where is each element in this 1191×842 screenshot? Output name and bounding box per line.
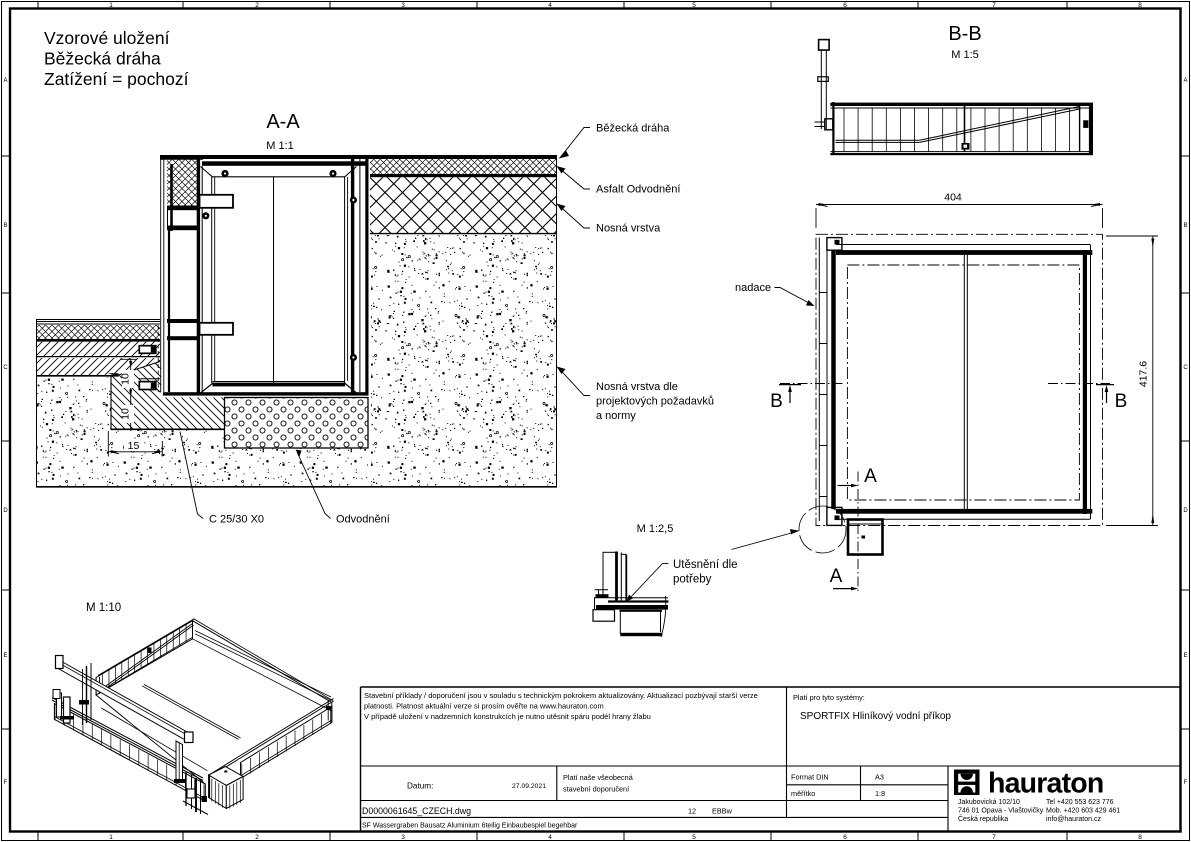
svg-text:A: A <box>830 566 843 587</box>
svg-text:V případě uložení v nadzemních: V případě uložení v nadzemních konstrukc… <box>364 712 651 721</box>
svg-text:B: B <box>770 391 783 412</box>
svg-text:C: C <box>3 365 8 371</box>
svg-text:3: 3 <box>401 2 405 9</box>
svg-text:a normy: a normy <box>596 410 636 422</box>
svg-text:8: 8 <box>1138 2 1142 9</box>
svg-text:417.6: 417.6 <box>1138 361 1150 387</box>
svg-text:A: A <box>864 466 877 487</box>
svg-text:1: 1 <box>109 834 113 841</box>
svg-text:A: A <box>1183 78 1187 84</box>
svg-text:stavební doporučení: stavební doporučení <box>563 785 629 794</box>
svg-text:Běžecká dráha: Běžecká dráha <box>44 49 161 69</box>
svg-text:M 1:10: M 1:10 <box>86 602 121 614</box>
svg-text:SPORTFIX Hliníkový vodní příko: SPORTFIX Hliníkový vodní příkop <box>800 711 951 722</box>
svg-text:Utěsnění dle: Utěsnění dle <box>673 559 738 571</box>
svg-text:A-A: A-A <box>266 111 300 133</box>
svg-text:10: 10 <box>120 408 132 420</box>
svg-text:Vzorové uložení: Vzorové uložení <box>44 28 170 48</box>
svg-text:D: D <box>3 508 8 514</box>
svg-text:C 25/30 X0: C 25/30 X0 <box>209 514 264 526</box>
svg-text:A: A <box>3 78 7 84</box>
svg-text:Tel +420 553 623 776: Tel +420 553 623 776 <box>1046 799 1114 806</box>
svg-text:E: E <box>1183 653 1187 659</box>
svg-text:Platí naše všeobecná: Platí naše všeobecná <box>563 773 634 782</box>
svg-text:EBBw: EBBw <box>712 807 733 816</box>
svg-text:Stavební příklady / doporučení: Stavební příklady / doporučení jsou v so… <box>364 691 758 700</box>
svg-text:platnosti. Platnost aktuální v: platnosti. Platnost aktuální verze si pr… <box>364 702 604 711</box>
svg-text:projektových požadavků: projektových požadavků <box>596 396 714 408</box>
svg-text:E: E <box>3 653 7 659</box>
svg-text:nadace: nadace <box>735 282 771 294</box>
svg-text:F: F <box>1184 780 1188 786</box>
svg-text:M 1:5: M 1:5 <box>951 49 979 61</box>
svg-text:M 1:2,5: M 1:2,5 <box>637 523 674 535</box>
svg-text:6: 6 <box>843 834 847 841</box>
svg-text:F: F <box>4 780 8 786</box>
svg-text:Odvodnění: Odvodnění <box>336 514 390 526</box>
svg-text:Nosná vrstva dle: Nosná vrstva dle <box>596 381 678 393</box>
svg-text:1:8: 1:8 <box>875 789 885 798</box>
svg-text:5: 5 <box>692 834 696 841</box>
svg-text:Nosná vrstva: Nosná vrstva <box>596 223 661 235</box>
svg-text:8: 8 <box>1138 834 1142 841</box>
svg-text:27.09.2021: 27.09.2021 <box>512 783 546 790</box>
svg-text:SF Wassergraben Bausatz Alumin: SF Wassergraben Bausatz Aluminium 6teili… <box>362 823 578 830</box>
svg-text:Jakubovická 102/10: Jakubovická 102/10 <box>958 799 1020 806</box>
svg-text:Format DIN: Format DIN <box>791 773 829 782</box>
svg-text:Zatížení = pochozí: Zatížení = pochozí <box>44 69 189 89</box>
svg-text:B: B <box>1115 391 1128 412</box>
svg-text:Platí pro tyto systémy:: Platí pro tyto systémy: <box>793 693 865 702</box>
svg-text:2: 2 <box>255 834 259 841</box>
svg-text:B: B <box>3 223 7 229</box>
svg-text:potřeby: potřeby <box>673 574 712 586</box>
svg-text:D0000061645_CZECH.dwg: D0000061645_CZECH.dwg <box>362 806 471 816</box>
svg-text:Mob. +420 603 429 461: Mob. +420 603 429 461 <box>1046 808 1120 815</box>
svg-text:15: 15 <box>128 440 140 452</box>
svg-text:7: 7 <box>992 834 996 841</box>
svg-text:Datum:: Datum: <box>407 782 433 791</box>
svg-text:měřítko: měřítko <box>791 789 815 798</box>
svg-text:2: 2 <box>255 2 259 9</box>
svg-text:746 01 Opava - Vlaštovičky: 746 01 Opava - Vlaštovičky <box>958 808 1044 815</box>
svg-text:A3: A3 <box>875 773 884 782</box>
svg-text:D: D <box>1183 508 1188 514</box>
svg-text:B: B <box>1183 223 1187 229</box>
svg-text:5: 5 <box>692 2 696 9</box>
svg-text:info@hauraton.cz: info@hauraton.cz <box>1046 816 1101 823</box>
svg-text:M 1:1: M 1:1 <box>266 140 294 152</box>
svg-text:4: 4 <box>548 834 552 841</box>
svg-text:3: 3 <box>401 834 405 841</box>
svg-text:10: 10 <box>120 373 132 385</box>
svg-text:Česká republika: Česká republika <box>958 814 1008 823</box>
svg-text:1: 1 <box>109 2 113 9</box>
svg-text:C: C <box>1183 365 1188 371</box>
svg-text:6: 6 <box>843 2 847 9</box>
svg-text:hauraton: hauraton <box>988 768 1104 800</box>
svg-text:4: 4 <box>548 2 552 9</box>
svg-text:B-B: B-B <box>948 23 981 45</box>
svg-text:7: 7 <box>992 2 996 9</box>
svg-text:404: 404 <box>944 192 962 204</box>
svg-text:Asfalt Odvodnění: Asfalt Odvodnění <box>596 184 680 196</box>
svg-text:12: 12 <box>688 807 696 816</box>
svg-text:Běžecká dráha: Běžecká dráha <box>596 123 670 135</box>
